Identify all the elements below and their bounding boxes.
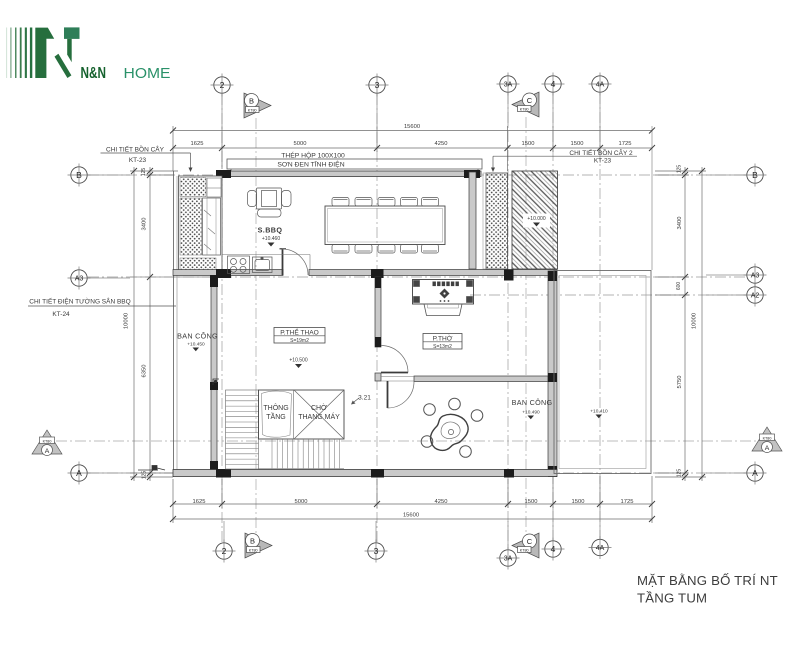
svg-text:A: A bbox=[45, 448, 50, 455]
svg-text:KT-23: KT-23 bbox=[594, 158, 612, 165]
svg-text:1500: 1500 bbox=[522, 141, 535, 147]
svg-text:TẦNG TUM: TẦNG TUM bbox=[637, 591, 707, 606]
svg-text:3: 3 bbox=[375, 80, 380, 90]
svg-text:+10.460: +10.460 bbox=[262, 236, 280, 242]
svg-text:S.BBQ: S.BBQ bbox=[258, 226, 283, 235]
svg-text:BAN CÔNG: BAN CÔNG bbox=[512, 398, 553, 407]
svg-text:4250: 4250 bbox=[435, 499, 448, 505]
svg-text:3A: 3A bbox=[504, 82, 513, 89]
svg-text:1500: 1500 bbox=[572, 499, 585, 505]
svg-text:5000: 5000 bbox=[294, 141, 307, 147]
svg-text:125: 125 bbox=[141, 168, 147, 177]
svg-text:4A: 4A bbox=[596, 545, 605, 552]
svg-text:4: 4 bbox=[551, 79, 556, 89]
svg-text:KT80: KT80 bbox=[520, 107, 529, 111]
svg-text:CHỜ: CHỜ bbox=[311, 403, 327, 412]
svg-text:+10.000: +10.000 bbox=[527, 216, 545, 222]
svg-text:3400: 3400 bbox=[142, 218, 148, 231]
svg-text:KT80: KT80 bbox=[248, 108, 257, 112]
svg-text:125: 125 bbox=[677, 165, 683, 174]
svg-text:B: B bbox=[76, 170, 82, 180]
svg-text:C: C bbox=[527, 96, 533, 105]
svg-text:2: 2 bbox=[220, 80, 225, 90]
svg-text:1625: 1625 bbox=[191, 141, 204, 147]
svg-text:KT80: KT80 bbox=[249, 548, 258, 552]
svg-text:125: 125 bbox=[677, 469, 683, 478]
svg-text:6350: 6350 bbox=[142, 365, 148, 378]
svg-text:1500: 1500 bbox=[525, 499, 538, 505]
svg-text:C: C bbox=[527, 537, 533, 546]
svg-text:KT-24: KT-24 bbox=[52, 311, 70, 318]
svg-text:A3: A3 bbox=[75, 276, 84, 283]
svg-text:A: A bbox=[752, 468, 758, 478]
svg-text:15600: 15600 bbox=[403, 513, 419, 519]
svg-text:4250: 4250 bbox=[435, 141, 448, 147]
svg-text:A: A bbox=[76, 468, 82, 478]
svg-text:N&N: N&N bbox=[81, 65, 107, 82]
svg-text:+10.410: +10.410 bbox=[590, 409, 608, 415]
svg-text:KT-23: KT-23 bbox=[129, 157, 147, 164]
svg-text:4: 4 bbox=[551, 544, 556, 554]
svg-text:KT80: KT80 bbox=[763, 436, 772, 440]
svg-text:3.21: 3.21 bbox=[358, 395, 371, 402]
svg-text:3400: 3400 bbox=[677, 217, 683, 230]
svg-text:SƠN ĐEN TĨNH ĐIỆN: SƠN ĐEN TĨNH ĐIỆN bbox=[277, 160, 344, 169]
svg-text:S=13m2: S=13m2 bbox=[433, 344, 452, 350]
svg-text:600: 600 bbox=[676, 282, 682, 291]
svg-text:3: 3 bbox=[374, 546, 379, 556]
svg-text:MẶT BẰNG BỐ TRÍ NT: MẶT BẰNG BỐ TRÍ NT bbox=[637, 573, 778, 588]
svg-text:3A: 3A bbox=[504, 556, 513, 563]
svg-text:+10.450: +10.450 bbox=[187, 342, 205, 348]
svg-text:THANG MÁY: THANG MÁY bbox=[298, 412, 340, 421]
svg-text:KT80: KT80 bbox=[43, 439, 52, 443]
svg-text:THÔNG: THÔNG bbox=[263, 403, 288, 412]
svg-text:2: 2 bbox=[222, 546, 227, 556]
svg-text:+10.500: +10.500 bbox=[289, 358, 307, 364]
svg-text:A: A bbox=[765, 445, 770, 452]
svg-text:125: 125 bbox=[142, 471, 148, 480]
svg-text:+10.490: +10.490 bbox=[522, 410, 540, 416]
svg-text:4A: 4A bbox=[596, 82, 605, 89]
svg-text:1725: 1725 bbox=[621, 499, 634, 505]
svg-text:P.THỜ: P.THỜ bbox=[433, 333, 453, 342]
svg-text:15600: 15600 bbox=[404, 124, 420, 130]
svg-text:B: B bbox=[249, 96, 254, 105]
svg-text:S=19m2: S=19m2 bbox=[290, 338, 309, 344]
svg-text:1500: 1500 bbox=[571, 141, 584, 147]
svg-text:THÉP HỘP 100X100: THÉP HỘP 100X100 bbox=[281, 151, 345, 160]
svg-text:5000: 5000 bbox=[295, 499, 308, 505]
svg-text:KT80: KT80 bbox=[520, 548, 529, 552]
svg-text:10000: 10000 bbox=[124, 313, 130, 329]
svg-text:HOME: HOME bbox=[124, 65, 171, 82]
svg-text:10000: 10000 bbox=[692, 313, 698, 329]
svg-text:A3: A3 bbox=[751, 273, 760, 280]
svg-text:BAN CÔNG: BAN CÔNG bbox=[177, 332, 218, 341]
svg-text:5750: 5750 bbox=[677, 376, 683, 389]
svg-text:1725: 1725 bbox=[619, 141, 632, 147]
svg-text:B: B bbox=[250, 536, 255, 545]
svg-text:1625: 1625 bbox=[193, 499, 206, 505]
svg-text:B: B bbox=[752, 170, 758, 180]
svg-text:A2: A2 bbox=[751, 293, 760, 300]
svg-text:P.THỂ THAO: P.THỂ THAO bbox=[280, 327, 319, 336]
